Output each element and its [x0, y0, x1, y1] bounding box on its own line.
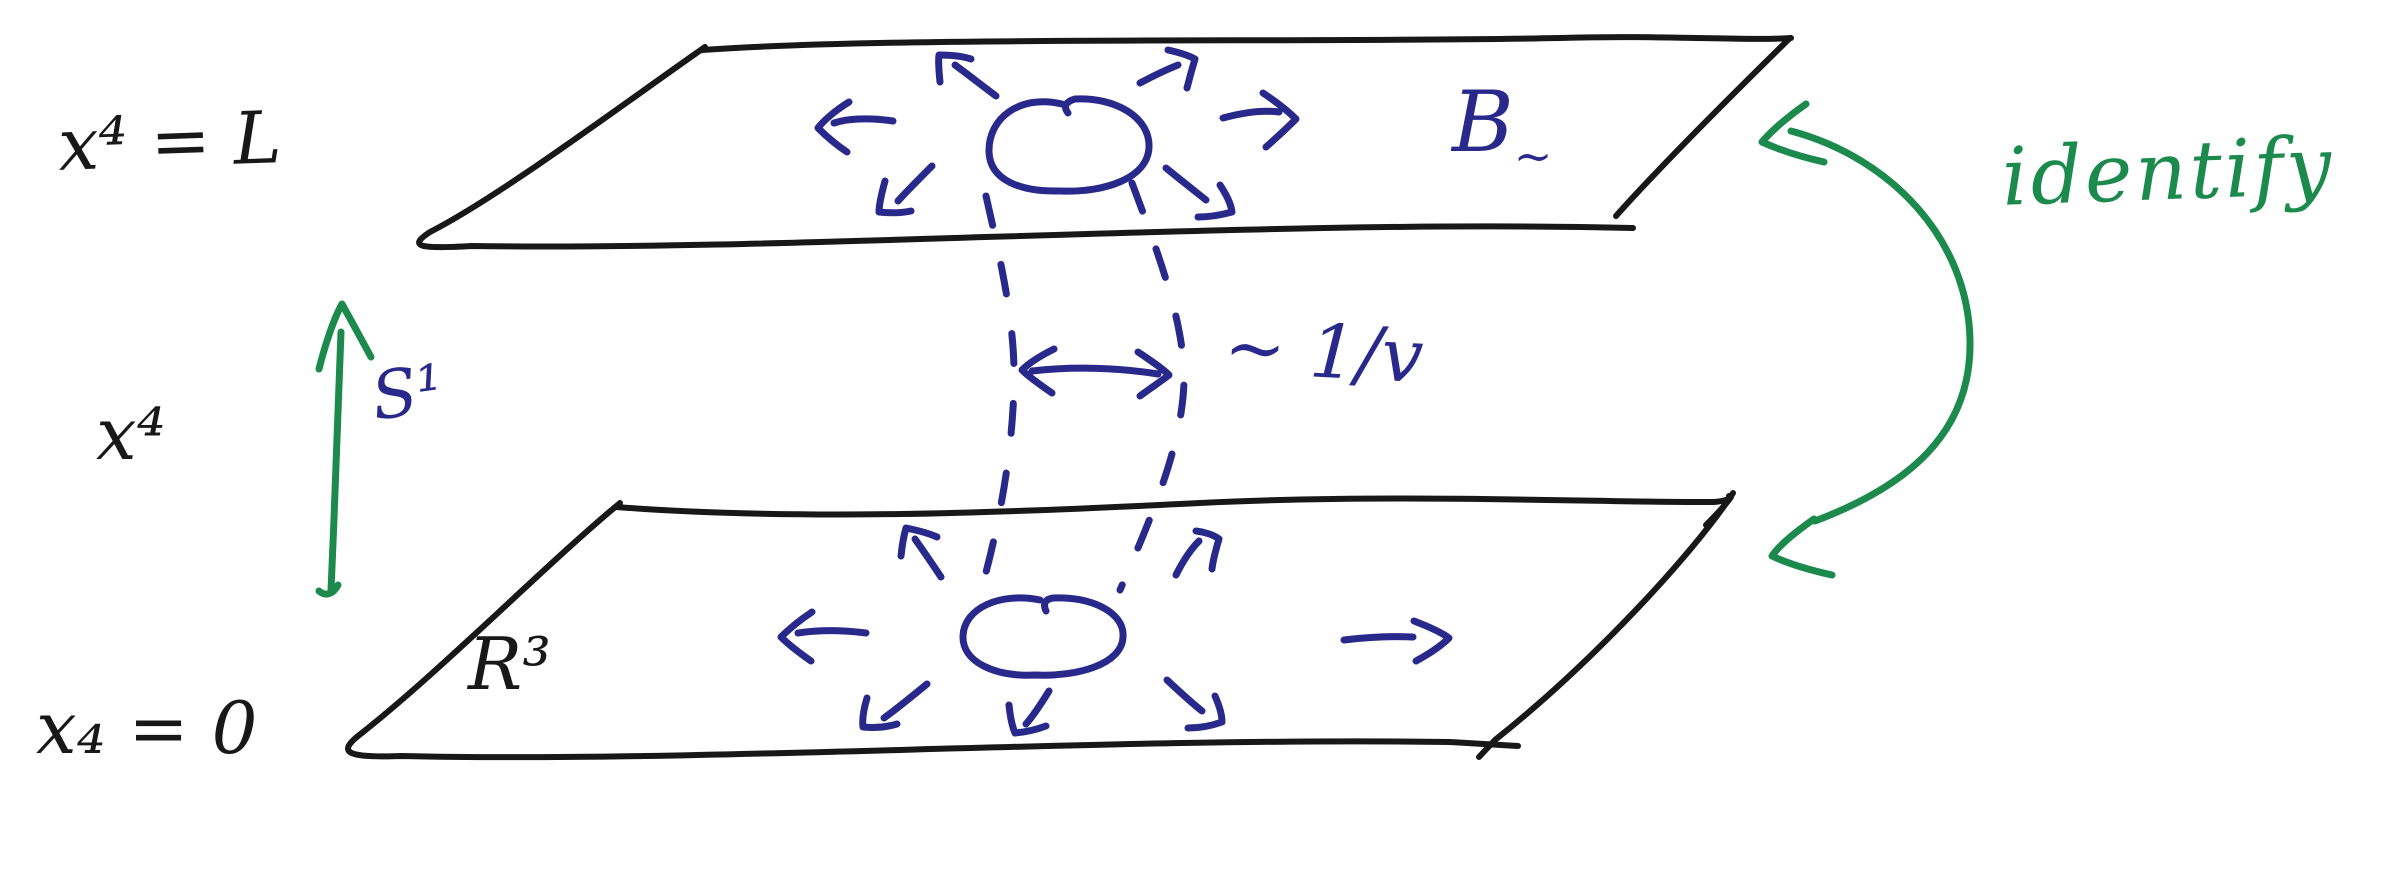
label-x4-equals-0: x₄ = 0 — [36, 692, 257, 764]
bottom-blob-outline — [963, 598, 1123, 675]
top-arrow-up-left — [939, 55, 996, 96]
top-plane-outline — [419, 37, 1791, 247]
bottom-arrow-up-right — [1176, 531, 1219, 575]
label-tube-width: ~ 1/v — [1222, 310, 1425, 394]
hand-drawn-diagram: x⁴ = L x⁴ x₄ = 0 S¹ R³ B~ ~ 1/v identify — [0, 0, 2387, 878]
bottom-arrow-down-right — [1167, 680, 1222, 728]
s1-arrow-shaft — [331, 332, 341, 591]
identify-arrow-curve — [1791, 131, 1970, 521]
bottom-arrow-up-left — [901, 528, 941, 577]
tube-dashed-line-left — [980, 196, 1014, 594]
top-arrow-down-left — [879, 166, 932, 213]
top-plane-right-edge — [1616, 38, 1790, 216]
label-B-base: B — [1452, 73, 1514, 171]
label-identify: identify — [2001, 126, 2336, 218]
label-x4-equals-L: x⁴ = L — [57, 101, 283, 181]
top-plane-left-and-bottom-edge — [419, 47, 1633, 247]
top-arrow-up-right — [1140, 50, 1195, 88]
bottom-plane-top-edge — [616, 496, 1730, 515]
bottom-plane-outline — [348, 493, 1733, 757]
label-x4-axis: x⁴ — [96, 398, 165, 470]
top-source-blob — [989, 99, 1149, 191]
top-blob-outline — [989, 99, 1149, 191]
identify-arrow-bottom-head — [1772, 519, 1832, 575]
top-plane-top-edge — [702, 37, 1791, 50]
label-S1: S¹ — [368, 355, 448, 430]
bottom-arrow-down-left — [863, 684, 927, 727]
top-arrow-down-right — [1166, 168, 1232, 217]
label-B-field: B~ — [1452, 80, 1552, 179]
bottom-arrow-left — [781, 612, 866, 661]
bottom-arrow-down — [1009, 691, 1049, 733]
bottom-source-blob — [963, 598, 1123, 675]
top-arrow-left — [818, 102, 893, 152]
s1-axis-arrow — [319, 304, 371, 594]
bottom-radial-field-arrows — [781, 528, 1449, 733]
s1-arrow-head — [319, 304, 371, 369]
bottom-arrow-right — [1344, 621, 1449, 661]
width-arrow-shaft — [1032, 368, 1158, 374]
label-B-subscript: ~ — [1514, 129, 1553, 183]
tube-width-arrow — [1022, 349, 1169, 396]
top-arrow-right — [1223, 93, 1296, 147]
bottom-plane-right-edge — [1479, 493, 1733, 757]
label-R3: R³ — [468, 628, 551, 700]
identify-arrow — [1762, 104, 1970, 575]
